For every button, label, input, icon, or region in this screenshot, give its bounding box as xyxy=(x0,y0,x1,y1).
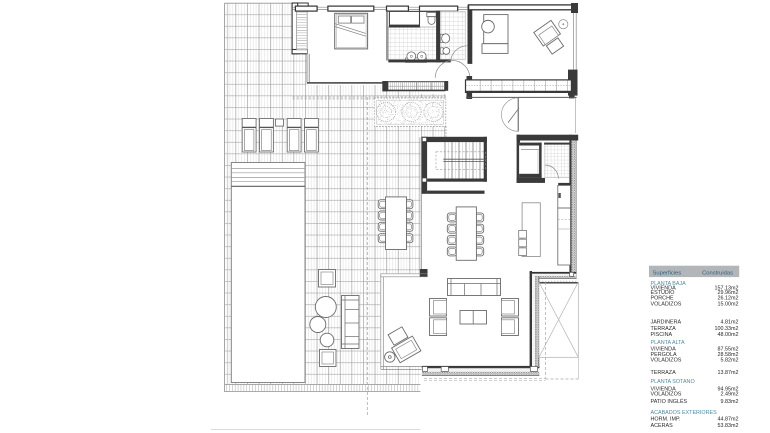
svg-text:48.00m2: 48.00m2 xyxy=(718,332,739,338)
svg-text:JARDINERA: JARDINERA xyxy=(651,320,682,326)
svg-text:PLANTA SOTANO: PLANTA SOTANO xyxy=(651,379,695,385)
svg-text:HORM. IMP.: HORM. IMP. xyxy=(651,416,681,422)
svg-text:VOLADIZOS: VOLADIZOS xyxy=(651,392,682,398)
svg-text:5.82m2: 5.82m2 xyxy=(721,357,739,363)
svg-text:100.33m2: 100.33m2 xyxy=(715,326,739,332)
svg-text:VOLADIZOS: VOLADIZOS xyxy=(651,302,682,308)
svg-text:ACERAS: ACERAS xyxy=(651,423,674,429)
svg-text:44.87m2: 44.87m2 xyxy=(718,416,739,422)
svg-text:15.00m2: 15.00m2 xyxy=(718,302,739,308)
svg-text:4.81m2: 4.81m2 xyxy=(721,320,739,326)
svg-text:PISCINA: PISCINA xyxy=(651,332,673,338)
svg-text:9.83m2: 9.83m2 xyxy=(721,399,739,405)
svg-text:PLANTA ALTA: PLANTA ALTA xyxy=(651,340,686,346)
svg-text:Superficies: Superficies xyxy=(653,271,682,277)
svg-text:Construidas: Construidas xyxy=(702,271,733,277)
svg-text:TERRAZA: TERRAZA xyxy=(651,370,677,376)
svg-text:VOLADIZOS: VOLADIZOS xyxy=(651,357,682,363)
svg-text:13.87m2: 13.87m2 xyxy=(718,370,739,376)
svg-text:TERRAZA: TERRAZA xyxy=(651,326,677,332)
svg-text:53.83m2: 53.83m2 xyxy=(718,423,739,429)
svg-text:ACABADOS EXTERIORES: ACABADOS EXTERIORES xyxy=(651,410,718,416)
svg-text:2.49m2: 2.49m2 xyxy=(721,392,739,398)
svg-text:PATIO INGLÉS: PATIO INGLÉS xyxy=(651,398,688,405)
